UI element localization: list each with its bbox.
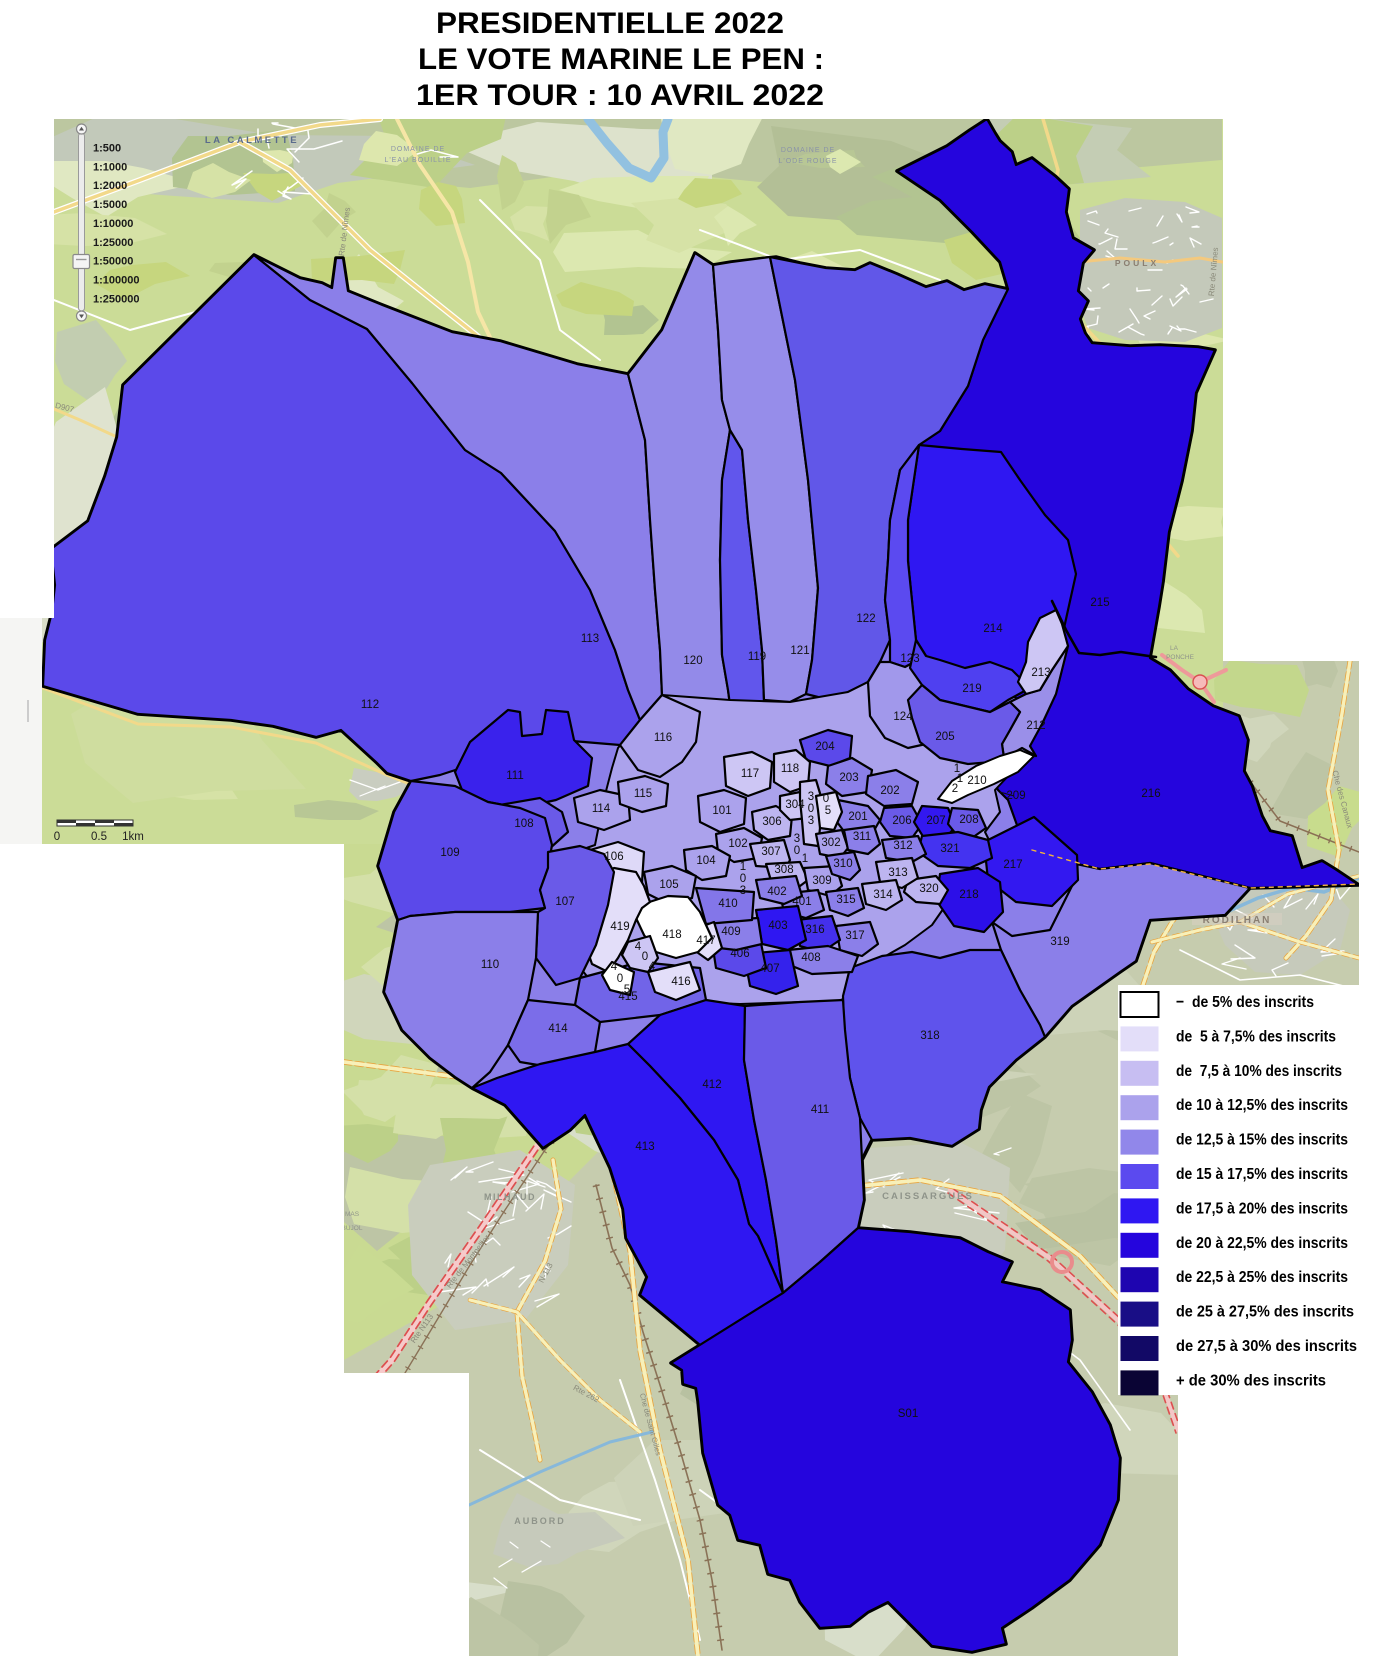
svg-text:316: 316 [805, 924, 824, 936]
svg-text:119: 119 [748, 651, 766, 663]
svg-text:208: 208 [959, 814, 978, 826]
svg-text:5: 5 [624, 984, 630, 996]
svg-text:1:5000: 1:5000 [93, 199, 127, 211]
svg-text:de 5 à 7,5% des inscrits: de 5 à 7,5% des inscrits [1176, 1028, 1336, 1045]
svg-text:BUJOL: BUJOL [342, 1225, 363, 1232]
svg-text:0: 0 [794, 845, 800, 857]
svg-text:219: 219 [962, 683, 981, 695]
svg-text:3: 3 [808, 815, 814, 827]
svg-text:410: 410 [718, 898, 737, 910]
svg-text:4: 4 [611, 961, 618, 973]
svg-text:111: 111 [506, 770, 523, 782]
svg-text:206: 206 [892, 815, 911, 827]
svg-text:202: 202 [880, 785, 899, 797]
svg-text:413: 413 [635, 1141, 654, 1153]
svg-text:215: 215 [1090, 597, 1109, 609]
svg-text:de 22,5 à 25% des inscrits: de 22,5 à 25% des inscrits [1176, 1269, 1348, 1286]
svg-text:110: 110 [481, 959, 499, 971]
svg-text:309: 309 [812, 875, 831, 887]
svg-text:PRESIDENTIELLE 2022: PRESIDENTIELLE 2022 [436, 7, 784, 40]
svg-text:1:100000: 1:100000 [93, 275, 140, 287]
svg-text:123: 123 [900, 653, 919, 665]
svg-text:4: 4 [649, 961, 656, 973]
svg-text:3: 3 [794, 833, 800, 845]
svg-text:120: 120 [683, 655, 702, 667]
svg-text:de 15 à 17,5% des inscrits: de 15 à 17,5% des inscrits [1176, 1166, 1348, 1183]
svg-text:109: 109 [440, 847, 459, 859]
svg-text:0: 0 [642, 951, 648, 963]
svg-text:de 25 à 27,5% des inscrits: de 25 à 27,5% des inscrits [1176, 1304, 1354, 1321]
svg-text:204: 204 [815, 741, 835, 753]
svg-text:209: 209 [1006, 790, 1025, 802]
svg-text:0: 0 [54, 831, 60, 843]
svg-text:CAISSARGUES: CAISSARGUES [882, 1191, 974, 1202]
svg-text:L'EAU BOUILLIE: L'EAU BOUILLIE [384, 157, 451, 164]
svg-text:408: 408 [801, 952, 820, 964]
svg-text:124: 124 [893, 711, 913, 723]
svg-text:0: 0 [808, 803, 814, 815]
svg-text:318: 318 [920, 1030, 939, 1042]
svg-text:AUBORD: AUBORD [514, 1516, 566, 1526]
svg-text:107: 107 [555, 896, 574, 908]
svg-text:314: 314 [873, 889, 893, 901]
svg-text:302: 302 [821, 837, 840, 849]
svg-text:de 17,5 à 20% des inscrits: de 17,5 à 20% des inscrits [1176, 1200, 1348, 1217]
svg-text:105: 105 [659, 879, 678, 891]
svg-text:LE VOTE MARINE LE PEN :: LE VOTE MARINE LE PEN : [418, 43, 824, 76]
svg-text:321: 321 [940, 843, 959, 855]
svg-text:113: 113 [581, 633, 599, 645]
svg-text:DOMAINE DE: DOMAINE DE [391, 146, 445, 153]
svg-text:1: 1 [802, 853, 808, 865]
svg-text:0.5: 0.5 [91, 831, 107, 843]
svg-text:308: 308 [774, 864, 793, 876]
svg-text:304: 304 [785, 799, 805, 811]
svg-text:1: 1 [740, 861, 746, 873]
svg-text:+ de 30% des inscrits: + de 30% des inscrits [1176, 1372, 1326, 1389]
svg-text:− de 5% des inscrits: − de 5% des inscrits [1176, 994, 1314, 1011]
svg-text:203: 203 [839, 772, 858, 784]
svg-text:de 12,5 à 15% des inscrits: de 12,5 à 15% des inscrits [1176, 1132, 1348, 1149]
svg-text:122: 122 [856, 613, 875, 625]
svg-text:118: 118 [781, 763, 799, 775]
svg-text:LA: LA [1170, 645, 1179, 652]
svg-text:de 20 à 22,5% des inscrits: de 20 à 22,5% des inscrits [1176, 1235, 1348, 1252]
svg-text:419: 419 [610, 921, 629, 933]
svg-text:121: 121 [790, 645, 809, 657]
svg-text:1:2000: 1:2000 [93, 180, 127, 192]
svg-text:210: 210 [967, 775, 986, 787]
svg-text:1:250000: 1:250000 [93, 293, 140, 305]
svg-text:310: 310 [833, 858, 852, 870]
svg-text:214: 214 [983, 623, 1003, 635]
svg-text:418: 418 [662, 929, 681, 941]
svg-text:402: 402 [767, 886, 786, 898]
svg-text:417: 417 [696, 935, 715, 947]
svg-text:406: 406 [730, 948, 749, 960]
svg-text:de 7,5 à 10% des inscrits: de 7,5 à 10% des inscrits [1176, 1063, 1342, 1080]
svg-text:212: 212 [1026, 720, 1045, 732]
svg-text:307: 307 [761, 846, 780, 858]
svg-text:1:50000: 1:50000 [93, 256, 133, 268]
svg-text:205: 205 [935, 731, 954, 743]
svg-text:MAS: MAS [345, 1211, 360, 1218]
svg-text:1:500: 1:500 [93, 143, 121, 155]
svg-text:1:1000: 1:1000 [93, 161, 127, 173]
svg-text:PONCHE: PONCHE [1166, 654, 1194, 661]
svg-text:MILHAUD: MILHAUD [484, 1192, 536, 1202]
svg-text:414: 414 [548, 1023, 568, 1035]
svg-text:101: 101 [712, 805, 731, 817]
svg-text:1ER TOUR : 10 AVRIL 2022: 1ER TOUR : 10 AVRIL 2022 [416, 79, 824, 112]
svg-text:403: 403 [768, 920, 787, 932]
svg-text:102: 102 [728, 838, 747, 850]
svg-text:de 10 à 12,5% des inscrits: de 10 à 12,5% des inscrits [1176, 1097, 1348, 1114]
svg-text:1:25000: 1:25000 [93, 237, 133, 249]
svg-text:4: 4 [635, 941, 642, 953]
svg-text:320: 320 [919, 883, 938, 895]
svg-text:312: 312 [893, 840, 912, 852]
svg-text:0: 0 [740, 873, 746, 885]
svg-text:313: 313 [888, 867, 907, 879]
svg-text:115: 115 [634, 788, 652, 800]
svg-text:de 27,5 à 30% des inscrits: de 27,5 à 30% des inscrits [1176, 1338, 1357, 1355]
svg-text:LA CALMETTE: LA CALMETTE [205, 135, 299, 146]
svg-text:112: 112 [361, 699, 379, 711]
svg-text:306: 306 [762, 816, 781, 828]
svg-text:319: 319 [1050, 936, 1069, 948]
svg-text:218: 218 [959, 889, 978, 901]
svg-text:412: 412 [702, 1079, 721, 1091]
svg-text:DOMAINE DE: DOMAINE DE [781, 147, 835, 154]
svg-text:207: 207 [926, 815, 945, 827]
svg-text:108: 108 [514, 818, 533, 830]
svg-text:106: 106 [604, 851, 623, 863]
svg-text:3: 3 [808, 791, 814, 803]
svg-text:401: 401 [792, 896, 811, 908]
svg-text:0: 0 [823, 793, 829, 805]
svg-text:217: 217 [1003, 859, 1022, 871]
svg-text:315: 315 [836, 894, 855, 906]
svg-text:2: 2 [952, 783, 958, 795]
svg-text:POULX: POULX [1115, 258, 1159, 268]
svg-text:5: 5 [825, 805, 831, 817]
svg-text:416: 416 [671, 976, 690, 988]
svg-text:213: 213 [1031, 667, 1050, 679]
svg-text:S01: S01 [898, 1408, 918, 1420]
svg-text:104: 104 [696, 855, 716, 867]
svg-text:216: 216 [1141, 788, 1160, 800]
svg-text:114: 114 [592, 803, 611, 815]
svg-text:1:10000: 1:10000 [93, 218, 133, 230]
svg-text:116: 116 [654, 732, 672, 744]
svg-text:3: 3 [740, 885, 746, 897]
svg-text:0: 0 [617, 973, 623, 985]
svg-text:409: 409 [721, 926, 740, 938]
svg-text:311: 311 [853, 831, 871, 843]
svg-text:201: 201 [848, 811, 867, 823]
svg-text:411: 411 [811, 1104, 829, 1116]
svg-text:317: 317 [845, 930, 864, 942]
svg-text:117: 117 [741, 768, 759, 780]
svg-text:407: 407 [760, 963, 779, 975]
svg-text:1km: 1km [122, 831, 144, 843]
svg-text:L'ODE ROUGE: L'ODE ROUGE [778, 158, 837, 165]
